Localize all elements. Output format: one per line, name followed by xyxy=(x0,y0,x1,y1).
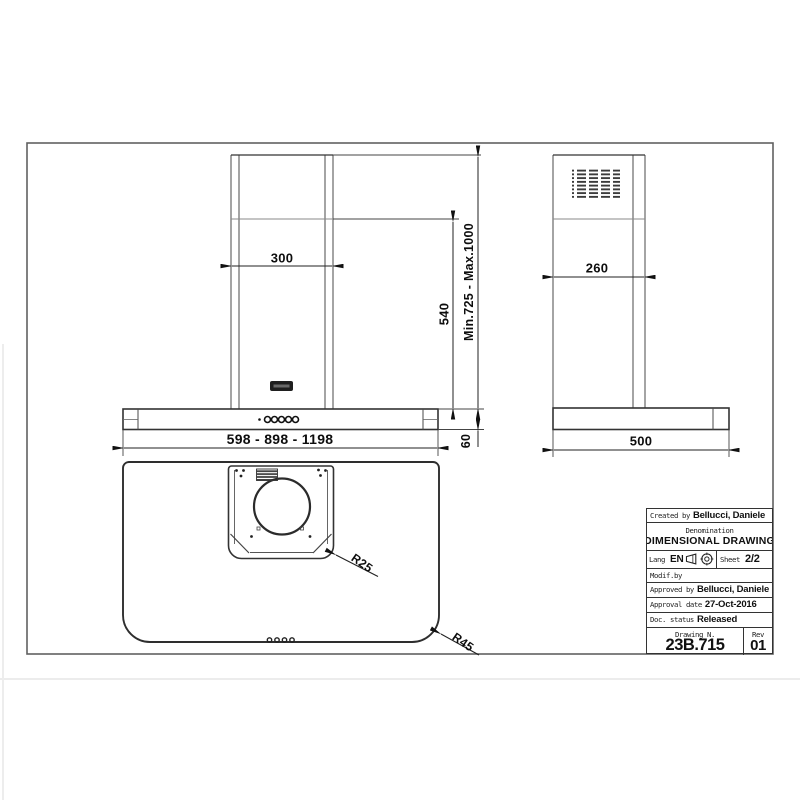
dim-body-widths: 598 - 898 - 1198 xyxy=(227,431,334,447)
sheet-cell: Sheet 2/2 xyxy=(717,551,772,568)
sheet-label: Sheet xyxy=(720,555,740,564)
lang-cell: Lang EN xyxy=(647,551,717,568)
title-block: Created by Bellucci, Daniele Denominatio… xyxy=(646,508,773,654)
revision-cell: Rev 01 xyxy=(744,628,772,655)
denomination-value: DIMENSIONAL DRAWING xyxy=(647,535,772,547)
approval-date-label: Approval date xyxy=(650,600,702,609)
created-by-value: Bellucci, Daniele xyxy=(693,510,765,521)
top-view xyxy=(123,462,479,655)
modif-by-label: Modif.by xyxy=(650,571,682,580)
sheet-value: 2/2 xyxy=(745,553,760,565)
blower-opening xyxy=(254,479,310,535)
title-block-row-denomination: Denomination DIMENSIONAL DRAWING xyxy=(647,523,772,551)
dim-body-height: 60 xyxy=(459,434,473,449)
front-view xyxy=(123,155,438,430)
title-block-row-modif-by: Modif.by xyxy=(647,569,772,583)
dim-chimney-visible-height: 540 xyxy=(437,303,452,326)
title-block-row-doc-status: Doc. status Released xyxy=(647,613,772,628)
denomination-label: Denomination xyxy=(686,526,734,535)
brand-logo xyxy=(270,381,293,391)
dim-chimney-depth: 260 xyxy=(586,261,609,276)
doc-status-label: Doc. status xyxy=(650,615,694,624)
revision-value: 01 xyxy=(750,639,766,652)
drawing-number-value: 23B.715 xyxy=(666,639,725,652)
approval-date-value: 27-Oct-2016 xyxy=(705,599,757,610)
title-block-row-drawing-number: Drawing N. 23B.715 Rev 01 xyxy=(647,628,772,655)
lang-value: EN xyxy=(670,554,684,565)
vent-grille xyxy=(572,168,620,198)
terminal-box xyxy=(257,469,278,481)
doc-status-value: Released xyxy=(697,614,737,625)
first-angle-cone-icon xyxy=(685,553,698,565)
approved-by-value: Bellucci, Daniele xyxy=(697,584,769,595)
dim-height-range: Min.725 - Max.1000 xyxy=(462,223,476,341)
cad-linework xyxy=(0,0,800,800)
title-block-row-lang-sheet: Lang EN Sheet 2/2 xyxy=(647,551,772,569)
title-block-row-created-by: Created by Bellucci, Daniele xyxy=(647,509,772,523)
drawing-sheet: 300 540 Min.725 - Max.1000 598 - 898 - 1… xyxy=(0,0,800,800)
dim-chimney-width: 300 xyxy=(271,251,294,266)
lang-label: Lang xyxy=(649,555,665,564)
first-angle-target-icon xyxy=(700,552,714,566)
title-block-row-approved-by: Approved by Bellucci, Daniele xyxy=(647,583,772,598)
side-view xyxy=(553,155,729,430)
drawing-number-cell: Drawing N. 23B.715 xyxy=(647,628,744,655)
dim-body-depth: 500 xyxy=(630,434,653,449)
approved-by-label: Approved by xyxy=(650,585,694,594)
created-by-label: Created by xyxy=(650,511,690,520)
title-block-row-approval-date: Approval date 27-Oct-2016 xyxy=(647,598,772,613)
